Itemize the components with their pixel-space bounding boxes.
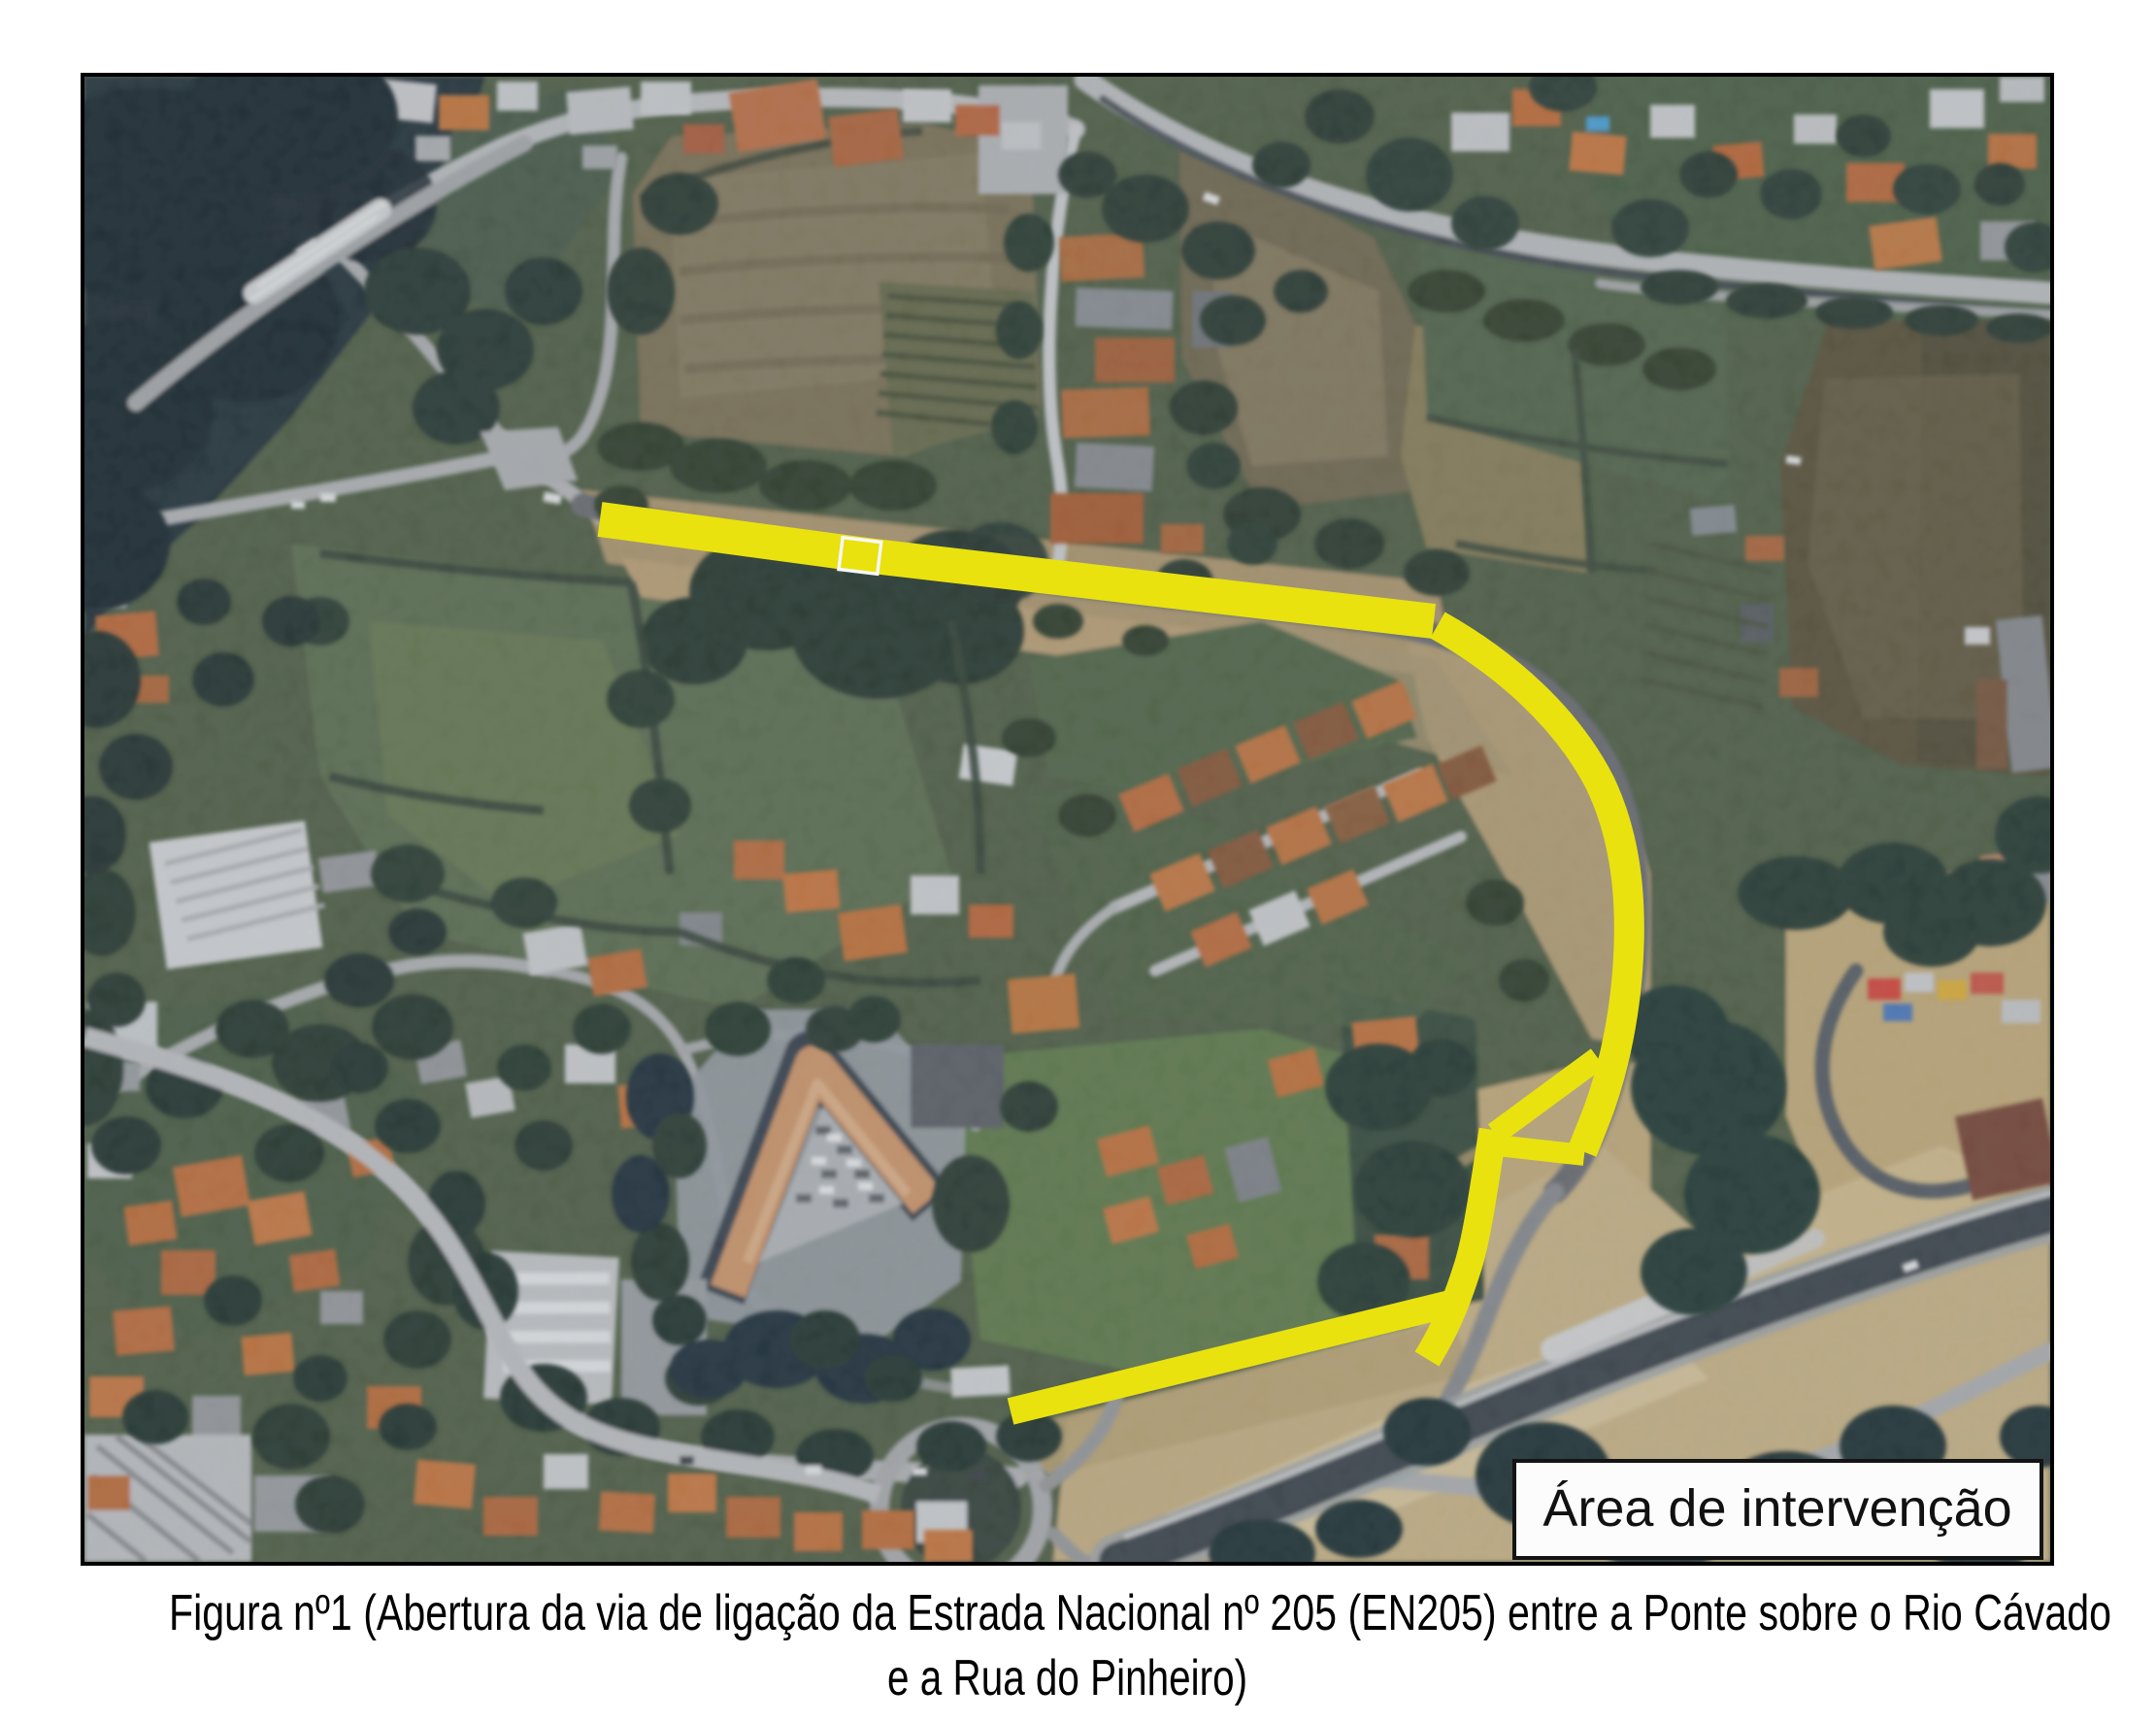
svg-text:Área de intervenção: Área de intervenção xyxy=(1542,1479,2011,1538)
